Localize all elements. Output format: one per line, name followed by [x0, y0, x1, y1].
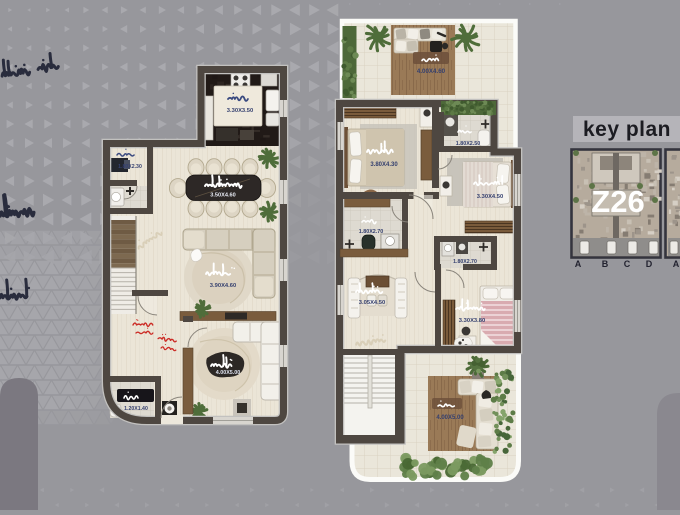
svg-text:3.50X4.60: 3.50X4.60 [210, 193, 236, 199]
svg-text:B: B [602, 259, 609, 269]
svg-text:C: C [624, 259, 631, 269]
svg-text:4.00X4.60: 4.00X4.60 [417, 68, 446, 75]
svg-text:1.80X2.30: 1.80X2.30 [118, 164, 142, 170]
svg-text:3.30X3.50: 3.30X3.50 [227, 108, 253, 114]
svg-text:1.80X2.70: 1.80X2.70 [359, 229, 384, 235]
svg-text:3.90X4.60: 3.90X4.60 [210, 283, 236, 289]
svg-text:4.00X5.00: 4.00X5.00 [436, 415, 464, 421]
svg-text:A: A [575, 259, 582, 269]
svg-text:3.30X3.80: 3.30X3.80 [459, 318, 485, 324]
svg-text:3.05X4.50: 3.05X4.50 [359, 300, 385, 306]
svg-text:D: D [646, 259, 653, 269]
svg-text:3.80X4.30: 3.80X4.30 [370, 162, 398, 168]
svg-text:3.30X4.50: 3.30X4.50 [477, 194, 503, 200]
svg-text:4.00X5.00: 4.00X5.00 [216, 370, 241, 376]
svg-text:key plan: key plan [583, 118, 671, 141]
svg-text:Z26: Z26 [591, 184, 644, 219]
svg-text:1.20X1.40: 1.20X1.40 [124, 406, 148, 412]
svg-text:A: A [673, 259, 680, 269]
